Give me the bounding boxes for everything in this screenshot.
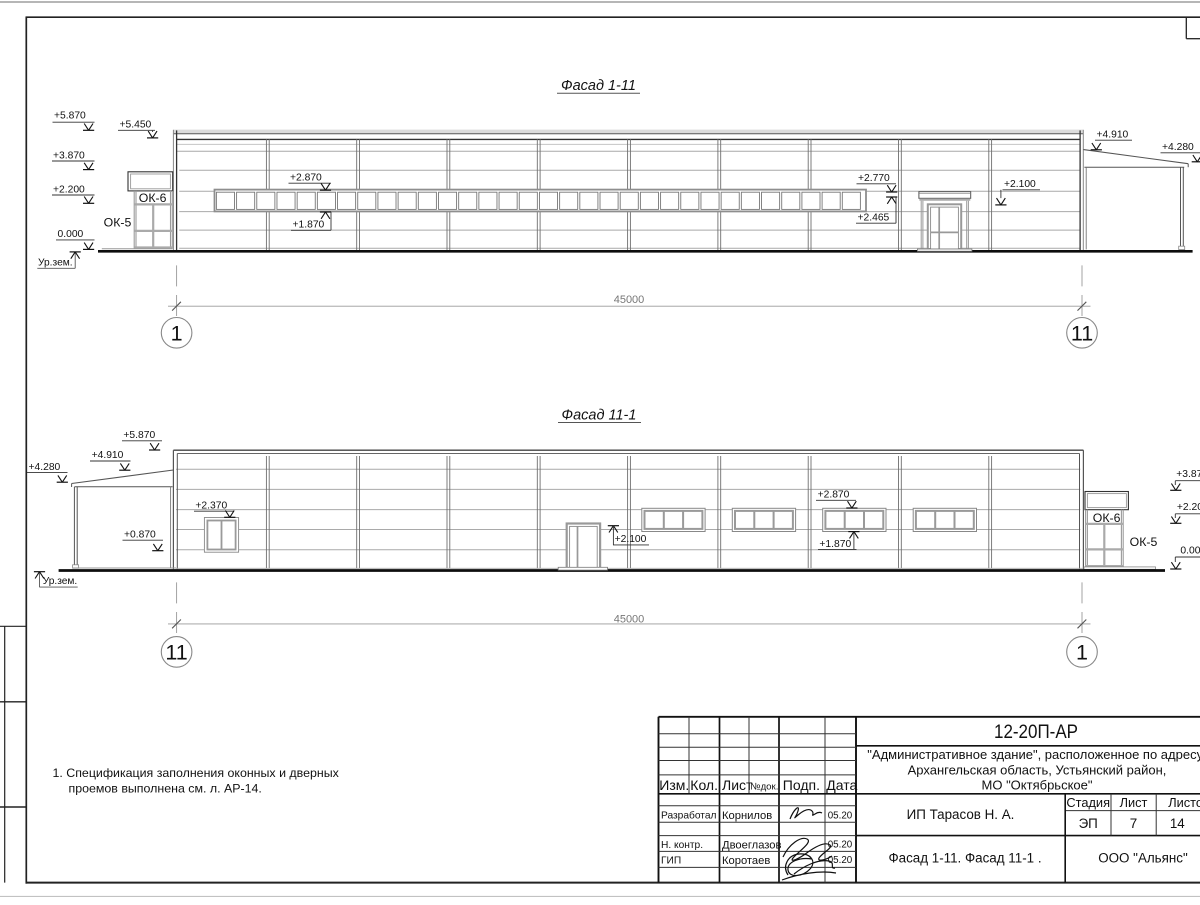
svg-text:05.20: 05.20	[828, 840, 853, 851]
svg-text:ОК-5: ОК-5	[104, 215, 132, 229]
svg-text:ОК-5: ОК-5	[1130, 535, 1158, 549]
svg-text:+2.465: +2.465	[858, 213, 890, 224]
svg-text:ИП Тарасов Н. А.: ИП Тарасов Н. А.	[907, 807, 1015, 822]
svg-text:Ур.зем.: Ур.зем.	[43, 576, 78, 587]
svg-text:+4.910: +4.910	[1097, 129, 1129, 140]
svg-text:Подп. и дата: Подп. и дата	[0, 730, 1, 778]
svg-text:Стадия: Стадия	[1066, 795, 1110, 810]
svg-text:Н. контр.: Н. контр.	[661, 840, 703, 851]
svg-text:+3.870: +3.870	[53, 150, 85, 161]
svg-text:12-20П-АР: 12-20П-АР	[994, 721, 1078, 743]
svg-text:+1.870: +1.870	[819, 539, 851, 550]
svg-text:+2.370: +2.370	[195, 500, 227, 511]
svg-text:ОК-6: ОК-6	[139, 191, 167, 205]
svg-text:Фасад 1-11: Фасад 1-11	[561, 78, 636, 94]
svg-text:0.000: 0.000	[58, 229, 84, 240]
svg-text:Подп.: Подп.	[783, 777, 820, 793]
svg-text:05.20: 05.20	[828, 810, 853, 821]
svg-text:+2.100: +2.100	[615, 534, 647, 545]
svg-text:1. Спецификация заполнения око: 1. Спецификация заполнения оконных и две…	[53, 766, 340, 780]
svg-text:+4.280: +4.280	[29, 462, 61, 473]
svg-text:проемов выполнена см. л. АР-14: проемов выполнена см. л. АР-14.	[69, 781, 262, 795]
svg-text:11: 11	[1071, 322, 1093, 346]
svg-text:1: 1	[1076, 641, 1088, 665]
svg-text:+4.280: +4.280	[1162, 142, 1194, 153]
svg-text:+5.870: +5.870	[123, 430, 155, 441]
svg-text:+5.450: +5.450	[120, 120, 152, 131]
svg-text:Инв. № подл.: Инв. № подл.	[0, 820, 1, 870]
svg-text:45000: 45000	[614, 294, 645, 306]
svg-text:+2.770: +2.770	[858, 173, 890, 184]
svg-text:Корнилов: Корнилов	[722, 810, 772, 822]
svg-text:Архангельская область, Устьянс: Архангельская область, Устьянский район,	[908, 762, 1167, 777]
svg-text:Ур.зем.: Ур.зем.	[38, 257, 73, 268]
svg-text:45000: 45000	[614, 614, 645, 626]
svg-text:Изм.: Изм.	[659, 777, 689, 793]
svg-text:7: 7	[1130, 816, 1137, 831]
svg-text:+2.200: +2.200	[53, 184, 85, 195]
svg-text:Фасад 11-1: Фасад 11-1	[562, 407, 637, 423]
svg-text:+2.870: +2.870	[818, 489, 850, 500]
svg-text:№док.: №док.	[750, 782, 778, 793]
svg-text:+2.100: +2.100	[1004, 179, 1036, 190]
svg-text:+3.870: +3.870	[1176, 469, 1200, 480]
svg-text:Взам. инв. №: Взам. инв. №	[0, 639, 2, 689]
svg-text:Разработал: Разработал	[661, 810, 717, 822]
svg-text:Лист: Лист	[722, 777, 753, 793]
svg-text:0.000: 0.000	[1180, 546, 1200, 557]
svg-text:+1.870: +1.870	[293, 220, 325, 231]
svg-text:Фасад 1-11. Фасад 11-1 .: Фасад 1-11. Фасад 11-1 .	[888, 850, 1041, 865]
svg-text:11: 11	[165, 641, 187, 665]
svg-text:Кол.: Кол.	[690, 777, 718, 793]
svg-text:ГИП: ГИП	[661, 855, 681, 866]
svg-text:+5.870: +5.870	[54, 110, 86, 121]
svg-text:+2.870: +2.870	[290, 173, 322, 184]
svg-text:14: 14	[1170, 816, 1185, 831]
svg-text:Двоеглазов: Двоеглазов	[722, 839, 782, 851]
svg-text:+0.870: +0.870	[124, 529, 156, 540]
svg-text:"Административное здание", рас: "Административное здание", расположенное…	[867, 747, 1200, 762]
svg-text:МО "Октябрьское": МО "Октябрьское"	[982, 777, 1093, 792]
svg-text:1: 1	[171, 322, 183, 346]
svg-text:+4.910: +4.910	[92, 450, 124, 461]
svg-text:Листов: Листов	[1168, 795, 1200, 810]
svg-text:+2.200: +2.200	[1177, 502, 1200, 513]
svg-text:ООО "Альянс": ООО "Альянс"	[1098, 850, 1188, 865]
svg-text:Дата: Дата	[826, 777, 857, 793]
svg-text:Лист: Лист	[1120, 795, 1148, 810]
svg-text:ЭП: ЭП	[1079, 816, 1098, 831]
svg-text:Коротаев: Коротаев	[722, 855, 770, 867]
svg-text:ОК-6: ОК-6	[1093, 511, 1121, 525]
